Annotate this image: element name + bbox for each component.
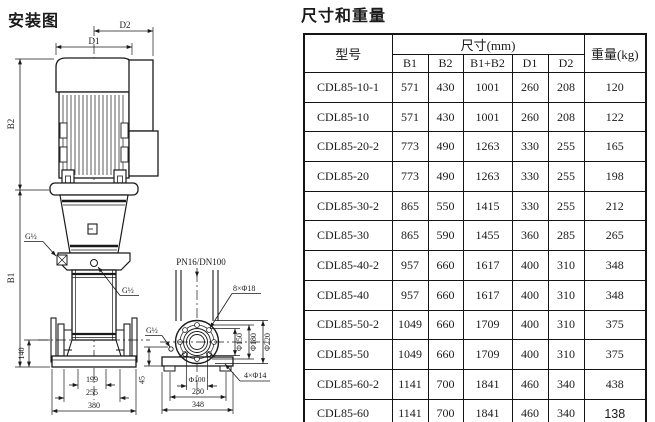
- table-row: CDL85-5010496601709400310375: [304, 340, 646, 370]
- cell-d1: 460: [512, 399, 548, 422]
- dim-label-phi150: Φ150: [235, 333, 244, 351]
- cell-b2: 660: [428, 340, 463, 370]
- cell-weight: 138: [584, 399, 646, 422]
- cell-d1: 400: [512, 310, 548, 340]
- col-header-b1b2: B1+B2: [463, 55, 512, 73]
- dim-label-348: 348: [192, 400, 204, 409]
- dim-label-phi180: Φ180: [249, 333, 258, 351]
- cell-d2: 285: [548, 221, 584, 251]
- terminal-box: [129, 60, 153, 131]
- cell-d2: 310: [548, 340, 584, 370]
- motor-lug: [121, 147, 128, 162]
- drain-plug: [169, 347, 173, 351]
- cell-b1: 773: [392, 162, 428, 192]
- dim-label-255: 255: [86, 388, 98, 397]
- cell-b2: 660: [428, 280, 463, 310]
- col-header-b2: B2: [428, 55, 463, 73]
- table-header: 型号 尺寸(mm) 重量(kg) B1 B2 B1+B2 D1 D2: [304, 34, 646, 73]
- cell-d2: 310: [548, 310, 584, 340]
- cell-b2: 490: [428, 162, 463, 192]
- model-cell: CDL85-40-2: [304, 251, 392, 281]
- model-cell: CDL85-20: [304, 162, 392, 192]
- cell-b2: 590: [428, 221, 463, 251]
- cell-d1: 360: [512, 221, 548, 251]
- cell-b1: 957: [392, 251, 428, 281]
- col-header-d1: D1: [512, 55, 548, 73]
- cell-b1: 1049: [392, 310, 428, 340]
- cell-b1b2: 1001: [463, 73, 512, 103]
- dimensions-title: 尺寸和重量: [301, 2, 386, 26]
- model-cell: CDL85-60-2: [304, 369, 392, 399]
- cell-d2: 310: [548, 251, 584, 281]
- cell-weight: 120: [584, 73, 646, 103]
- model-cell: CDL85-50-2: [304, 310, 392, 340]
- table-row: CDL85-10-15714301001260208120: [304, 73, 646, 103]
- plug-label-g-half-right: G½: [122, 286, 134, 295]
- plug-label-g-half-left: G½: [25, 232, 37, 241]
- cell-d2: 340: [548, 369, 584, 399]
- cell-b1: 1049: [392, 340, 428, 370]
- cell-d1: 400: [512, 251, 548, 281]
- cell-weight: 375: [584, 340, 646, 370]
- dimensions-table: 型号 尺寸(mm) 重量(kg) B1 B2 B1+B2 D1 D2 CDL85…: [303, 33, 647, 422]
- dim-label-phi100: Φ100: [189, 375, 206, 384]
- cell-b1: 957: [392, 280, 428, 310]
- cell-b1b2: 1617: [463, 280, 512, 310]
- cell-b1b2: 1455: [463, 221, 512, 251]
- model-cell: CDL85-30-2: [304, 191, 392, 221]
- col-header-dims-group: 尺寸(mm): [392, 34, 584, 55]
- cell-b1: 1141: [392, 369, 428, 399]
- cell-b1b2: 1617: [463, 251, 512, 281]
- vent-plug: [57, 255, 67, 265]
- cell-b2: 430: [428, 102, 463, 132]
- table-body: CDL85-10-15714301001260208120CDL85-10571…: [304, 73, 646, 422]
- cell-d2: 255: [548, 191, 584, 221]
- cell-b1b2: 1709: [463, 310, 512, 340]
- cell-b2: 700: [428, 399, 463, 422]
- motor-lug: [60, 147, 67, 162]
- cell-b2: 700: [428, 369, 463, 399]
- dim-label-d1: D1: [89, 36, 100, 46]
- cell-b1: 571: [392, 73, 428, 103]
- cell-b1: 865: [392, 191, 428, 221]
- cell-b1b2: 1263: [463, 132, 512, 162]
- cell-weight: 265: [584, 221, 646, 251]
- head-plug: [91, 260, 98, 267]
- col-header-b1: B1: [392, 55, 428, 73]
- table-row: CDL85-308655901455360285265: [304, 221, 646, 251]
- table-row: CDL85-40-29576601617400310348: [304, 251, 646, 281]
- cell-b1b2: 1415: [463, 191, 512, 221]
- pump-main-view: [38, 26, 158, 400]
- cell-d2: 208: [548, 102, 584, 132]
- cell-weight: 122: [584, 102, 646, 132]
- cell-d1: 260: [512, 102, 548, 132]
- cell-b2: 430: [428, 73, 463, 103]
- cell-weight: 165: [584, 132, 646, 162]
- cell-d2: 310: [548, 280, 584, 310]
- cell-b1: 773: [392, 132, 428, 162]
- cell-d2: 255: [548, 162, 584, 192]
- cell-d2: 340: [548, 399, 584, 422]
- base-foot: [164, 366, 175, 371]
- col-header-weight: 重量(kg): [584, 34, 646, 73]
- dim-label-b1: B1: [6, 273, 16, 284]
- dim-label-140: 140: [17, 348, 26, 360]
- dim-label-b2: B2: [6, 119, 16, 130]
- model-cell: CDL85-40: [304, 280, 392, 310]
- cell-b2: 660: [428, 310, 463, 340]
- table-row: CDL85-20-27734901263330255165: [304, 132, 646, 162]
- cell-b1b2: 1709: [463, 340, 512, 370]
- col-header-d2: D2: [548, 55, 584, 73]
- plug-label-g-half-base: G½: [146, 326, 158, 335]
- cell-d1: 330: [512, 132, 548, 162]
- base-holes-label: 4×Φ14: [244, 371, 266, 380]
- cell-b1b2: 1263: [463, 162, 512, 192]
- table-row: CDL85-60-211417001841460340438: [304, 369, 646, 399]
- cell-b2: 490: [428, 132, 463, 162]
- dim-label-d2: D2: [120, 20, 131, 30]
- chamber-stack: [72, 270, 116, 340]
- flange-rating-label: PN16/DN100: [176, 257, 226, 267]
- cell-d1: 400: [512, 280, 548, 310]
- pump-base: [52, 356, 136, 367]
- table-row: CDL85-409576601617400310348: [304, 280, 646, 310]
- terminal-box-lower: [129, 131, 158, 176]
- cell-weight: 348: [584, 280, 646, 310]
- cell-weight: 438: [584, 369, 646, 399]
- installation-drawing: D2 D1 B2 B1 G½ G½ 140 199 255 380 PN16/D…: [0, 0, 300, 422]
- cell-b2: 660: [428, 251, 463, 281]
- fan-cover: [56, 58, 132, 92]
- table-row: CDL85-207734901263330255198: [304, 162, 646, 192]
- cell-d1: 460: [512, 369, 548, 399]
- cell-b1b2: 1841: [463, 399, 512, 422]
- dimensions-section: 尺寸和重量 型号 尺寸(mm) 重量(kg) B1 B2 B1+B2 D1 D: [300, 0, 655, 422]
- cell-d2: 255: [548, 132, 584, 162]
- cell-weight: 375: [584, 310, 646, 340]
- catalog-page: 安装图: [0, 0, 655, 422]
- cell-b1b2: 1001: [463, 102, 512, 132]
- model-cell: CDL85-20-2: [304, 132, 392, 162]
- motor-lug: [121, 123, 128, 138]
- model-cell: CDL85-60: [304, 399, 392, 422]
- cell-d2: 208: [548, 73, 584, 103]
- cell-b1b2: 1841: [463, 369, 512, 399]
- cell-b2: 550: [428, 191, 463, 221]
- cell-d1: 330: [512, 162, 548, 192]
- table-row: CDL85-105714301001260208122: [304, 102, 646, 132]
- cell-d1: 400: [512, 340, 548, 370]
- col-header-model: 型号: [304, 34, 392, 73]
- cell-b1: 571: [392, 102, 428, 132]
- model-cell: CDL85-10-1: [304, 73, 392, 103]
- table-row: CDL85-30-28655501415330255212: [304, 191, 646, 221]
- cell-weight: 348: [584, 251, 646, 281]
- model-cell: CDL85-50: [304, 340, 392, 370]
- cell-weight: 198: [584, 162, 646, 192]
- dim-label-280: 280: [192, 387, 204, 396]
- stool-flange: [50, 183, 138, 195]
- cell-d1: 330: [512, 191, 548, 221]
- dim-label-199: 199: [86, 375, 98, 384]
- cell-weight: 212: [584, 191, 646, 221]
- dim-label-45: 45: [138, 376, 147, 384]
- motor-lug: [60, 123, 67, 138]
- flange-holes-label: 8×Φ18: [233, 284, 255, 293]
- model-cell: CDL85-30: [304, 221, 392, 251]
- table-row: CDL85-50-210496601709400310375: [304, 310, 646, 340]
- cell-d1: 260: [512, 73, 548, 103]
- dim-label-380: 380: [88, 401, 100, 410]
- table-row: CDL85-6011417001841460340138: [304, 399, 646, 422]
- dim-label-phi220: Φ220: [263, 333, 272, 351]
- cell-b1: 1141: [392, 399, 428, 422]
- motor-body: [59, 92, 129, 178]
- model-cell: CDL85-10: [304, 102, 392, 132]
- cell-b1: 865: [392, 221, 428, 251]
